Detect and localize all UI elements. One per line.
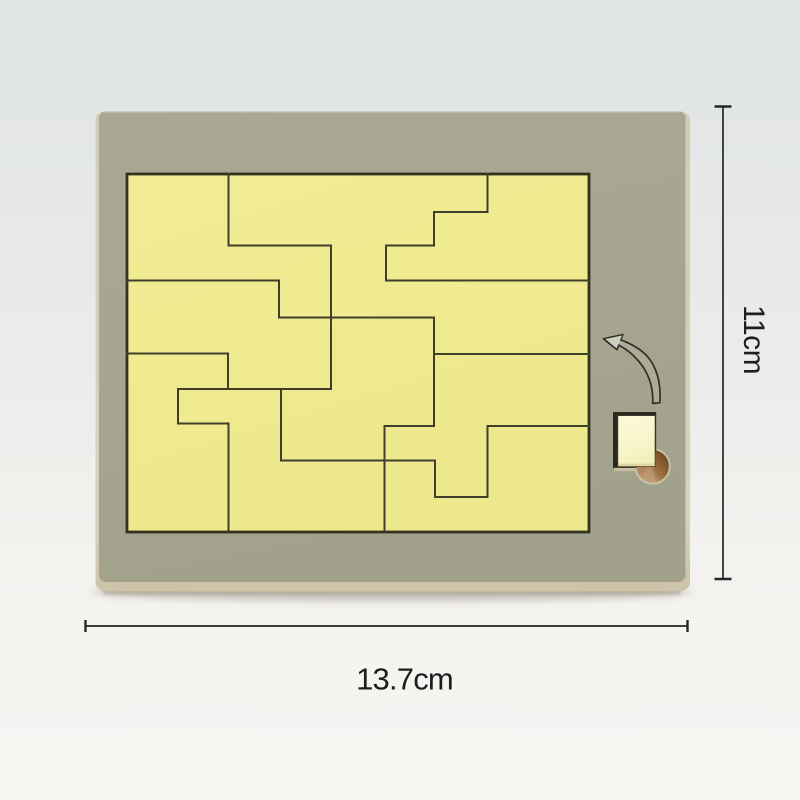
svg-text:13.7cm: 13.7cm <box>356 662 453 697</box>
svg-text:11cm: 11cm <box>737 305 770 374</box>
